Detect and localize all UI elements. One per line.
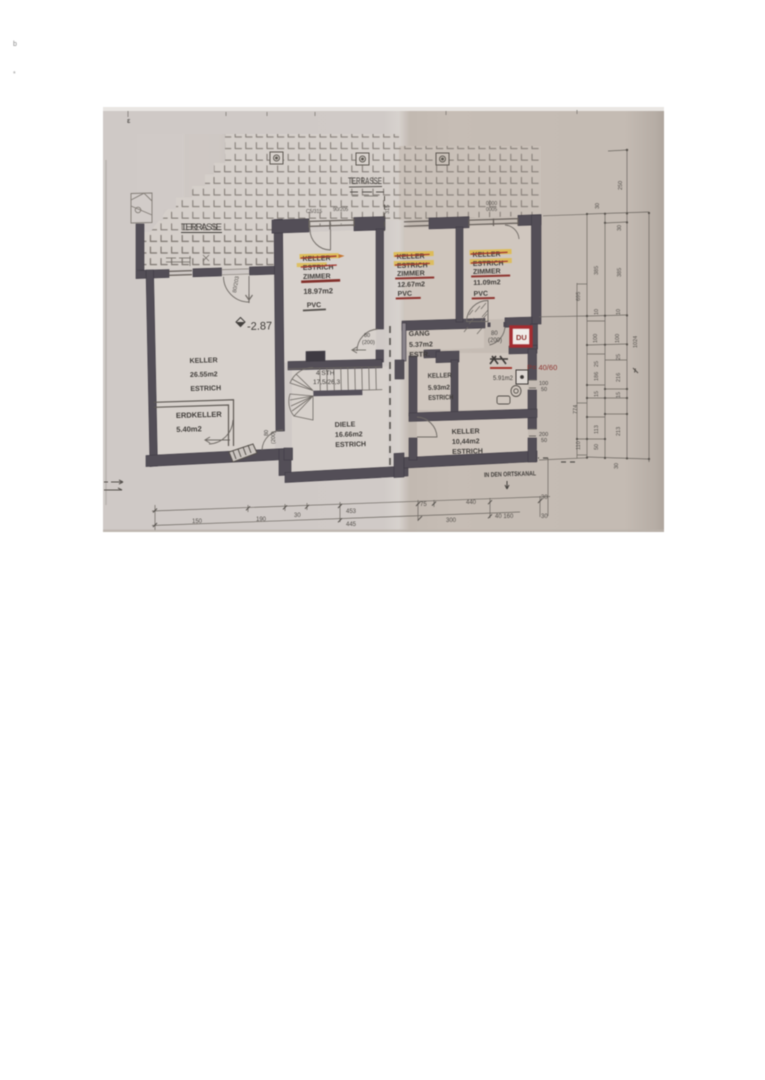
svg-text:16.66m2: 16.66m2 xyxy=(335,431,363,439)
svg-text:250: 250 xyxy=(618,181,624,190)
svg-text:C5/315: C5/315 xyxy=(306,209,322,215)
svg-text:0005: 0005 xyxy=(486,207,497,213)
svg-text:DIELE: DIELE xyxy=(335,421,356,429)
svg-text:385: 385 xyxy=(617,268,623,277)
svg-text:KELLER: KELLER xyxy=(190,357,218,365)
svg-text:1024: 1024 xyxy=(633,336,639,348)
svg-text:KELLER: KELLER xyxy=(428,372,452,380)
svg-text:30: 30 xyxy=(614,463,620,469)
svg-text:15: 15 xyxy=(594,391,600,397)
svg-text:190: 190 xyxy=(256,517,267,523)
svg-text:PVC: PVC xyxy=(474,291,489,298)
svg-text:445: 445 xyxy=(346,522,357,528)
svg-text:453: 453 xyxy=(346,509,357,515)
svg-text:110: 110 xyxy=(576,441,582,450)
svg-text:b: b xyxy=(13,41,17,48)
svg-text:10: 10 xyxy=(594,309,600,315)
svg-text:(200): (200) xyxy=(271,431,277,444)
svg-text:186: 186 xyxy=(594,372,600,381)
svg-text:90/205: 90/205 xyxy=(333,207,349,213)
svg-text:(200): (200) xyxy=(488,338,502,344)
svg-text:10,44m2: 10,44m2 xyxy=(452,438,480,446)
svg-text:26.55m2: 26.55m2 xyxy=(190,371,218,379)
svg-text:P= 40/60: P= 40/60 xyxy=(527,363,557,372)
svg-text:80: 80 xyxy=(364,333,370,339)
svg-text:ZIMMER: ZIMMER xyxy=(473,268,501,276)
svg-text:18.97m2: 18.97m2 xyxy=(303,286,333,296)
svg-text:PVC: PVC xyxy=(307,302,322,309)
svg-text:KELLER: KELLER xyxy=(452,428,480,436)
svg-text:50: 50 xyxy=(594,444,600,450)
svg-text:30: 30 xyxy=(541,514,548,520)
svg-text:30: 30 xyxy=(541,495,548,501)
svg-text:300: 300 xyxy=(446,518,457,524)
svg-text:PVC: PVC xyxy=(398,291,413,298)
svg-text:5.93m2: 5.93m2 xyxy=(428,384,450,392)
svg-text:-2.87: -2.87 xyxy=(247,320,272,333)
svg-text:100: 100 xyxy=(615,334,621,343)
svg-text:GANG: GANG xyxy=(409,330,431,338)
svg-text:75: 75 xyxy=(420,502,427,508)
svg-text:ESTRICH: ESTRICH xyxy=(428,394,453,402)
svg-text:11.09m2: 11.09m2 xyxy=(473,279,501,287)
svg-text:5.40m2: 5.40m2 xyxy=(176,424,202,434)
svg-text:12.67m2: 12.67m2 xyxy=(397,281,425,289)
svg-text:(200): (200) xyxy=(362,340,375,346)
svg-text:774: 774 xyxy=(573,405,579,414)
svg-text:ESTR.: ESTR. xyxy=(409,351,430,359)
svg-text:ESTRICH: ESTRICH xyxy=(452,448,483,456)
svg-text:17,5/26,3: 17,5/26,3 xyxy=(313,379,340,386)
svg-text:100: 100 xyxy=(593,334,599,343)
svg-text:ESTRICH: ESTRICH xyxy=(335,441,366,449)
svg-text:695: 695 xyxy=(576,292,582,301)
svg-text:5.91m2: 5.91m2 xyxy=(493,375,513,382)
svg-text:440: 440 xyxy=(466,500,477,506)
svg-text:385: 385 xyxy=(594,266,600,275)
svg-text:113: 113 xyxy=(594,425,600,434)
svg-text:80: 80 xyxy=(491,331,498,337)
svg-text:50: 50 xyxy=(541,387,547,393)
svg-text:ERDKELLER: ERDKELLER xyxy=(176,410,223,420)
svg-text:TERRASSE: TERRASSE xyxy=(348,176,382,187)
svg-text:15: 15 xyxy=(616,392,622,398)
svg-text:*: * xyxy=(13,71,16,78)
svg-text:10: 10 xyxy=(616,309,622,315)
svg-text:25: 25 xyxy=(594,361,600,367)
svg-text:50: 50 xyxy=(541,438,547,444)
svg-text:ESTRICH: ESTRICH xyxy=(190,385,221,393)
svg-text:216: 216 xyxy=(616,373,622,382)
svg-text:213: 213 xyxy=(616,427,622,436)
svg-text:80: 80 xyxy=(264,430,270,436)
svg-text:ZIMMER: ZIMMER xyxy=(397,270,425,278)
svg-text:40 160: 40 160 xyxy=(495,514,514,520)
svg-text:30: 30 xyxy=(617,225,623,231)
svg-text:5.37m2: 5.37m2 xyxy=(409,341,433,349)
svg-text:30: 30 xyxy=(595,203,601,209)
svg-text:4 STH: 4 STH xyxy=(316,370,335,377)
svg-text:315: 315 xyxy=(385,205,391,214)
svg-text:TERRASSE: TERRASSE xyxy=(181,222,222,233)
svg-text:150: 150 xyxy=(192,519,203,525)
svg-text:25: 25 xyxy=(616,354,622,360)
svg-text:30: 30 xyxy=(294,513,301,519)
svg-text:DU: DU xyxy=(516,333,527,342)
